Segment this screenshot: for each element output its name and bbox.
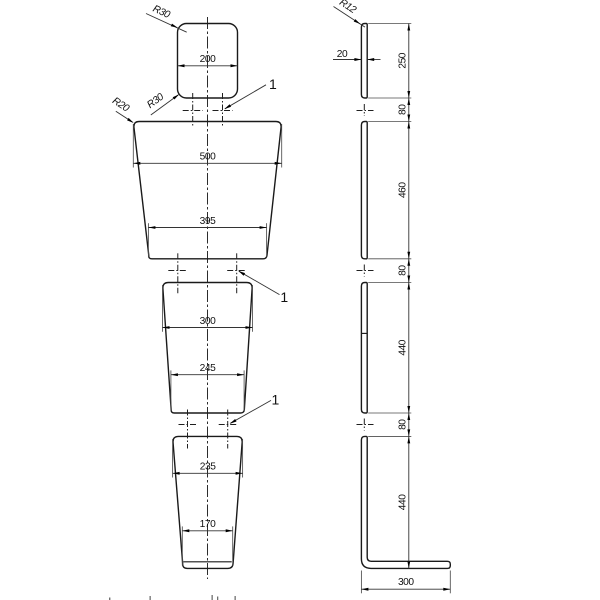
svg-text:300: 300	[398, 577, 414, 588]
svg-text:440: 440	[398, 494, 409, 510]
svg-text:1: 1	[280, 289, 288, 305]
svg-text:460: 460	[398, 182, 409, 198]
svg-text:395: 395	[200, 216, 216, 227]
svg-text:170: 170	[200, 519, 216, 530]
svg-text:235: 235	[200, 462, 216, 473]
svg-text:300: 300	[200, 316, 216, 327]
svg-text:500: 500	[200, 152, 216, 163]
svg-text:250: 250	[398, 52, 409, 68]
svg-text:200: 200	[200, 54, 216, 65]
svg-text:245: 245	[200, 363, 216, 374]
svg-text:1: 1	[269, 76, 277, 92]
svg-text:20: 20	[337, 49, 348, 60]
svg-text:80: 80	[398, 104, 409, 115]
svg-text:80: 80	[398, 265, 409, 276]
svg-text:440: 440	[398, 339, 409, 355]
svg-text:1: 1	[272, 392, 280, 408]
svg-text:80: 80	[398, 419, 409, 430]
